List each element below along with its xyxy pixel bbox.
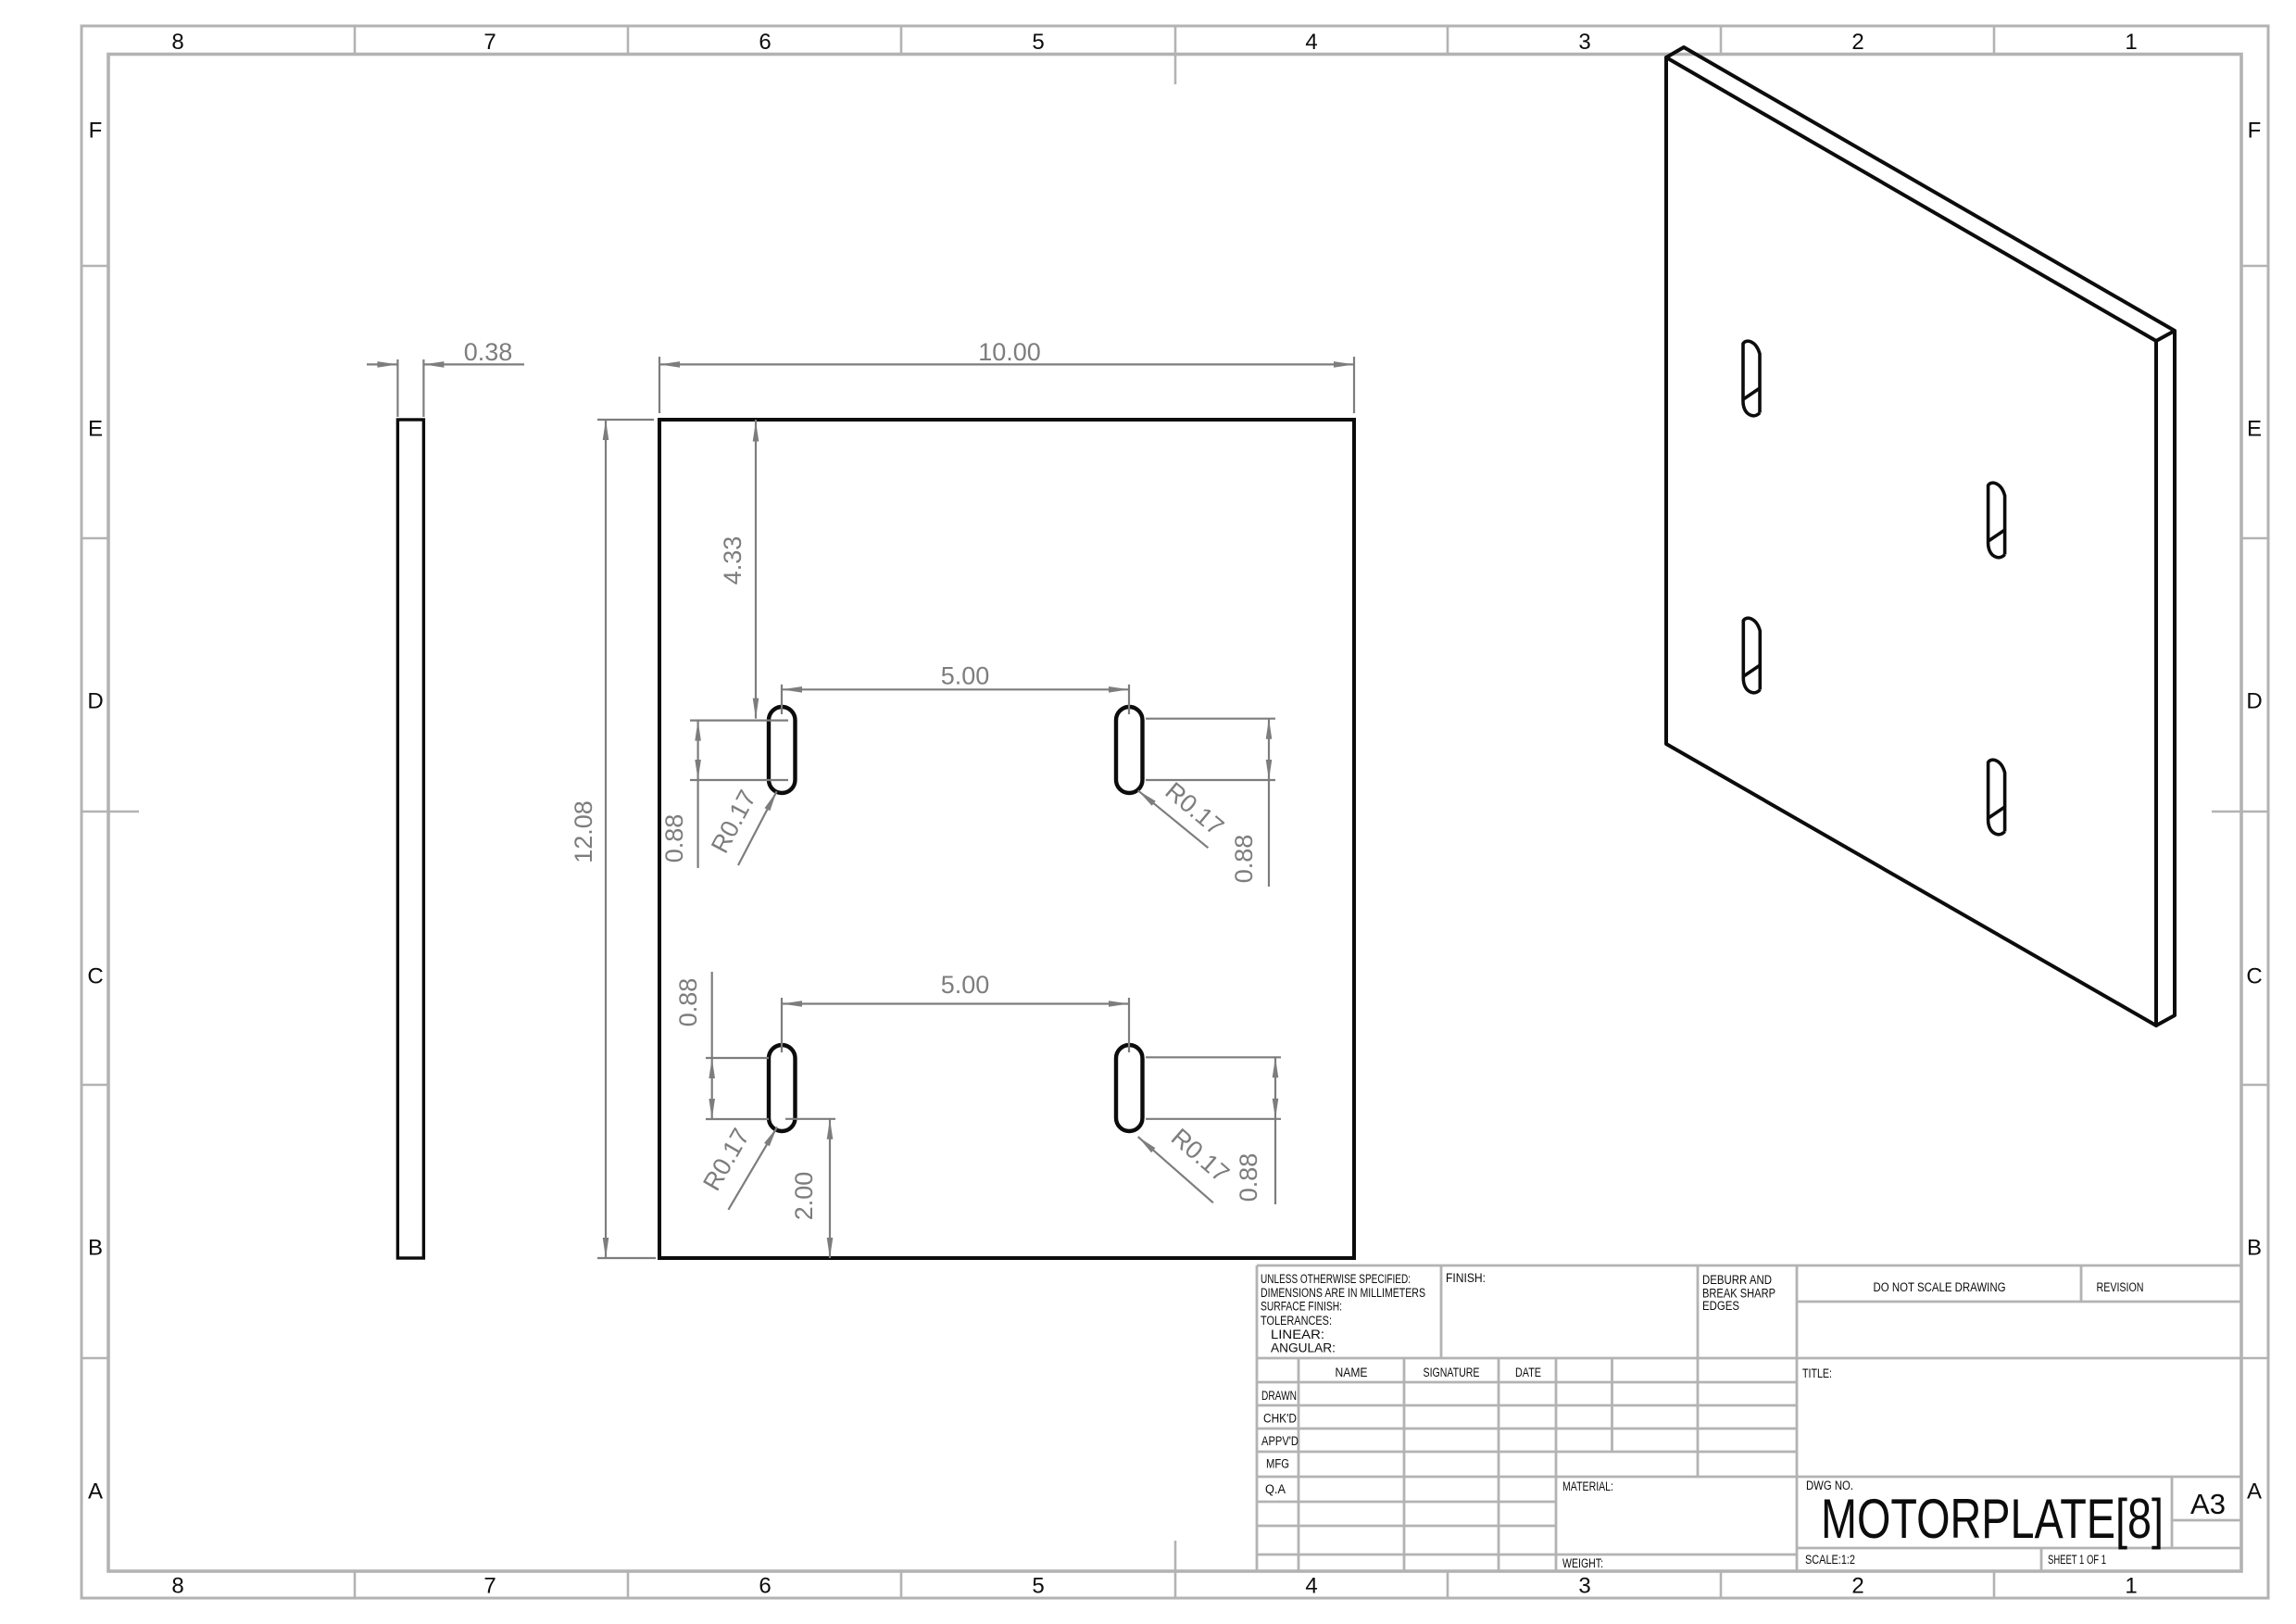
- svg-text:FINISH:: FINISH:: [1446, 1271, 1486, 1285]
- svg-text:5.00: 5.00: [941, 971, 990, 999]
- svg-text:MATERIAL:: MATERIAL:: [1562, 1479, 1613, 1493]
- svg-text:D: D: [2246, 689, 2262, 714]
- svg-text:APPV'D: APPV'D: [1261, 1434, 1299, 1448]
- svg-text:4.33: 4.33: [719, 536, 747, 585]
- svg-text:E: E: [88, 417, 103, 442]
- svg-text:DIMENSIONS ARE IN MILLIMETERS: DIMENSIONS ARE IN MILLIMETERS: [1261, 1286, 1425, 1300]
- svg-text:SHEET 1 OF 1: SHEET 1 OF 1: [2048, 1553, 2106, 1567]
- svg-text:REVISION: REVISION: [2097, 1280, 2144, 1294]
- svg-text:F: F: [2248, 119, 2262, 144]
- svg-text:0.38: 0.38: [464, 338, 513, 366]
- svg-text:B: B: [88, 1236, 103, 1261]
- svg-text:4: 4: [1305, 30, 1317, 55]
- svg-text:2: 2: [1851, 1574, 1863, 1599]
- svg-text:MOTORPLATE[8]: MOTORPLATE[8]: [1821, 1488, 2164, 1550]
- svg-text:12.08: 12.08: [570, 800, 597, 863]
- svg-text:1: 1: [2125, 1574, 2137, 1599]
- svg-text:A3: A3: [2190, 1488, 2226, 1520]
- svg-text:EDGES: EDGES: [1702, 1299, 1739, 1313]
- svg-text:ANGULAR:: ANGULAR:: [1271, 1341, 1336, 1355]
- svg-text:SIGNATURE: SIGNATURE: [1424, 1366, 1480, 1379]
- svg-text:5.00: 5.00: [941, 662, 990, 690]
- svg-text:MFG: MFG: [1266, 1457, 1289, 1471]
- svg-text:0.88: 0.88: [1230, 835, 1258, 884]
- svg-text:F: F: [89, 119, 103, 144]
- svg-text:5: 5: [1032, 30, 1044, 55]
- svg-text:CHK'D: CHK'D: [1263, 1412, 1297, 1426]
- svg-text:3: 3: [1578, 1574, 1590, 1599]
- svg-text:NAME: NAME: [1336, 1366, 1368, 1379]
- svg-text:3: 3: [1578, 30, 1590, 55]
- svg-text:7: 7: [483, 30, 496, 55]
- svg-text:UNLESS OTHERWISE SPECIFIED:: UNLESS OTHERWISE SPECIFIED:: [1261, 1272, 1411, 1286]
- svg-text:7: 7: [483, 1574, 496, 1599]
- svg-text:DO NOT SCALE DRAWING: DO NOT SCALE DRAWING: [1874, 1280, 2006, 1294]
- svg-text:E: E: [2247, 417, 2262, 442]
- svg-text:C: C: [2246, 964, 2262, 989]
- svg-text:DEBURR AND: DEBURR AND: [1702, 1273, 1772, 1287]
- svg-text:D: D: [87, 689, 103, 714]
- svg-text:A: A: [2247, 1479, 2262, 1504]
- svg-text:1: 1: [2125, 30, 2137, 55]
- svg-text:8: 8: [171, 1574, 183, 1599]
- svg-text:0.88: 0.88: [1235, 1153, 1262, 1202]
- svg-text:2: 2: [1851, 30, 1863, 55]
- svg-text:2.00: 2.00: [790, 1172, 818, 1221]
- svg-text:0.88: 0.88: [660, 814, 688, 863]
- svg-text:LINEAR:: LINEAR:: [1271, 1328, 1324, 1341]
- svg-text:B: B: [2247, 1236, 2262, 1261]
- svg-text:4: 4: [1305, 1574, 1317, 1599]
- svg-text:TITLE:: TITLE:: [1802, 1366, 1832, 1380]
- svg-text:TOLERANCES:: TOLERANCES:: [1261, 1314, 1332, 1328]
- svg-text:WEIGHT:: WEIGHT:: [1562, 1556, 1603, 1570]
- svg-text:8: 8: [171, 30, 183, 55]
- svg-text:6: 6: [759, 1574, 771, 1599]
- svg-text:10.00: 10.00: [978, 338, 1041, 366]
- svg-text:DRAWN: DRAWN: [1261, 1389, 1297, 1403]
- svg-text:A: A: [88, 1479, 103, 1504]
- svg-text:SURFACE FINISH:: SURFACE FINISH:: [1261, 1300, 1342, 1314]
- svg-text:SCALE:1:2: SCALE:1:2: [1805, 1553, 1855, 1567]
- svg-text:0.88: 0.88: [674, 978, 702, 1027]
- svg-text:DATE: DATE: [1515, 1366, 1541, 1379]
- svg-text:5: 5: [1032, 1574, 1044, 1599]
- svg-text:C: C: [87, 964, 103, 989]
- svg-text:6: 6: [759, 30, 771, 55]
- svg-text:Q.A: Q.A: [1265, 1482, 1286, 1496]
